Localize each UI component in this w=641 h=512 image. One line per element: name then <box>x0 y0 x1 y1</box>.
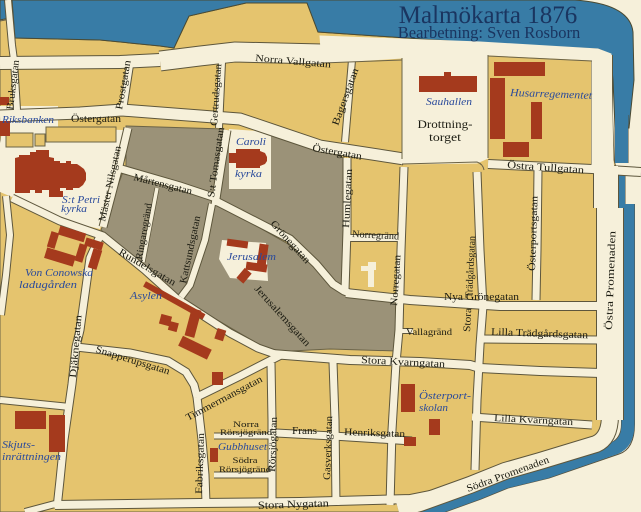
svg-text:Drottning-: Drottning- <box>418 117 473 131</box>
svg-text:Jerusalem: Jerusalem <box>227 251 276 263</box>
svg-text:Rörsjögränd: Rörsjögränd <box>220 427 273 437</box>
svg-text:Stora: Stora <box>462 307 474 332</box>
svg-text:Gasverksgatan: Gasverksgatan <box>322 416 335 480</box>
svg-text:skolan: skolan <box>419 402 448 414</box>
svg-text:Vallagränd: Vallagränd <box>406 327 453 337</box>
svg-text:Riksbanken: Riksbanken <box>1 114 55 126</box>
svg-text:ladugården: ladugården <box>19 279 78 291</box>
svg-text:Rörsjögränd: Rörsjögränd <box>219 464 272 474</box>
svg-text:Henriksgatan: Henriksgatan <box>344 427 405 440</box>
svg-text:Österport-: Österport- <box>419 390 471 402</box>
svg-text:Östergatan: Östergatan <box>71 113 122 125</box>
svg-text:Skjuts-: Skjuts- <box>2 439 35 451</box>
svg-text:Asylen: Asylen <box>129 290 163 302</box>
svg-text:inrättningen: inrättningen <box>2 451 62 463</box>
svg-text:Stora Nygatan: Stora Nygatan <box>258 498 330 512</box>
svg-text:Caroli: Caroli <box>236 136 266 148</box>
svg-text:kyrka: kyrka <box>235 168 263 180</box>
svg-text:Nya Grönegatan: Nya Grönegatan <box>444 292 519 303</box>
svg-text:kyrka: kyrka <box>61 204 87 215</box>
svg-text:Frans: Frans <box>292 426 317 437</box>
svg-text:Bearbetning: Sven Rosborn: Bearbetning: Sven Rosborn <box>398 23 580 42</box>
svg-text:Gubbhuset: Gubbhuset <box>218 441 268 453</box>
svg-text:Von Conowska: Von Conowska <box>25 267 94 279</box>
svg-text:Fabriksgatan: Fabriksgatan <box>194 433 207 494</box>
svg-text:torget: torget <box>429 130 462 144</box>
svg-text:Sauhallen: Sauhallen <box>426 96 473 108</box>
